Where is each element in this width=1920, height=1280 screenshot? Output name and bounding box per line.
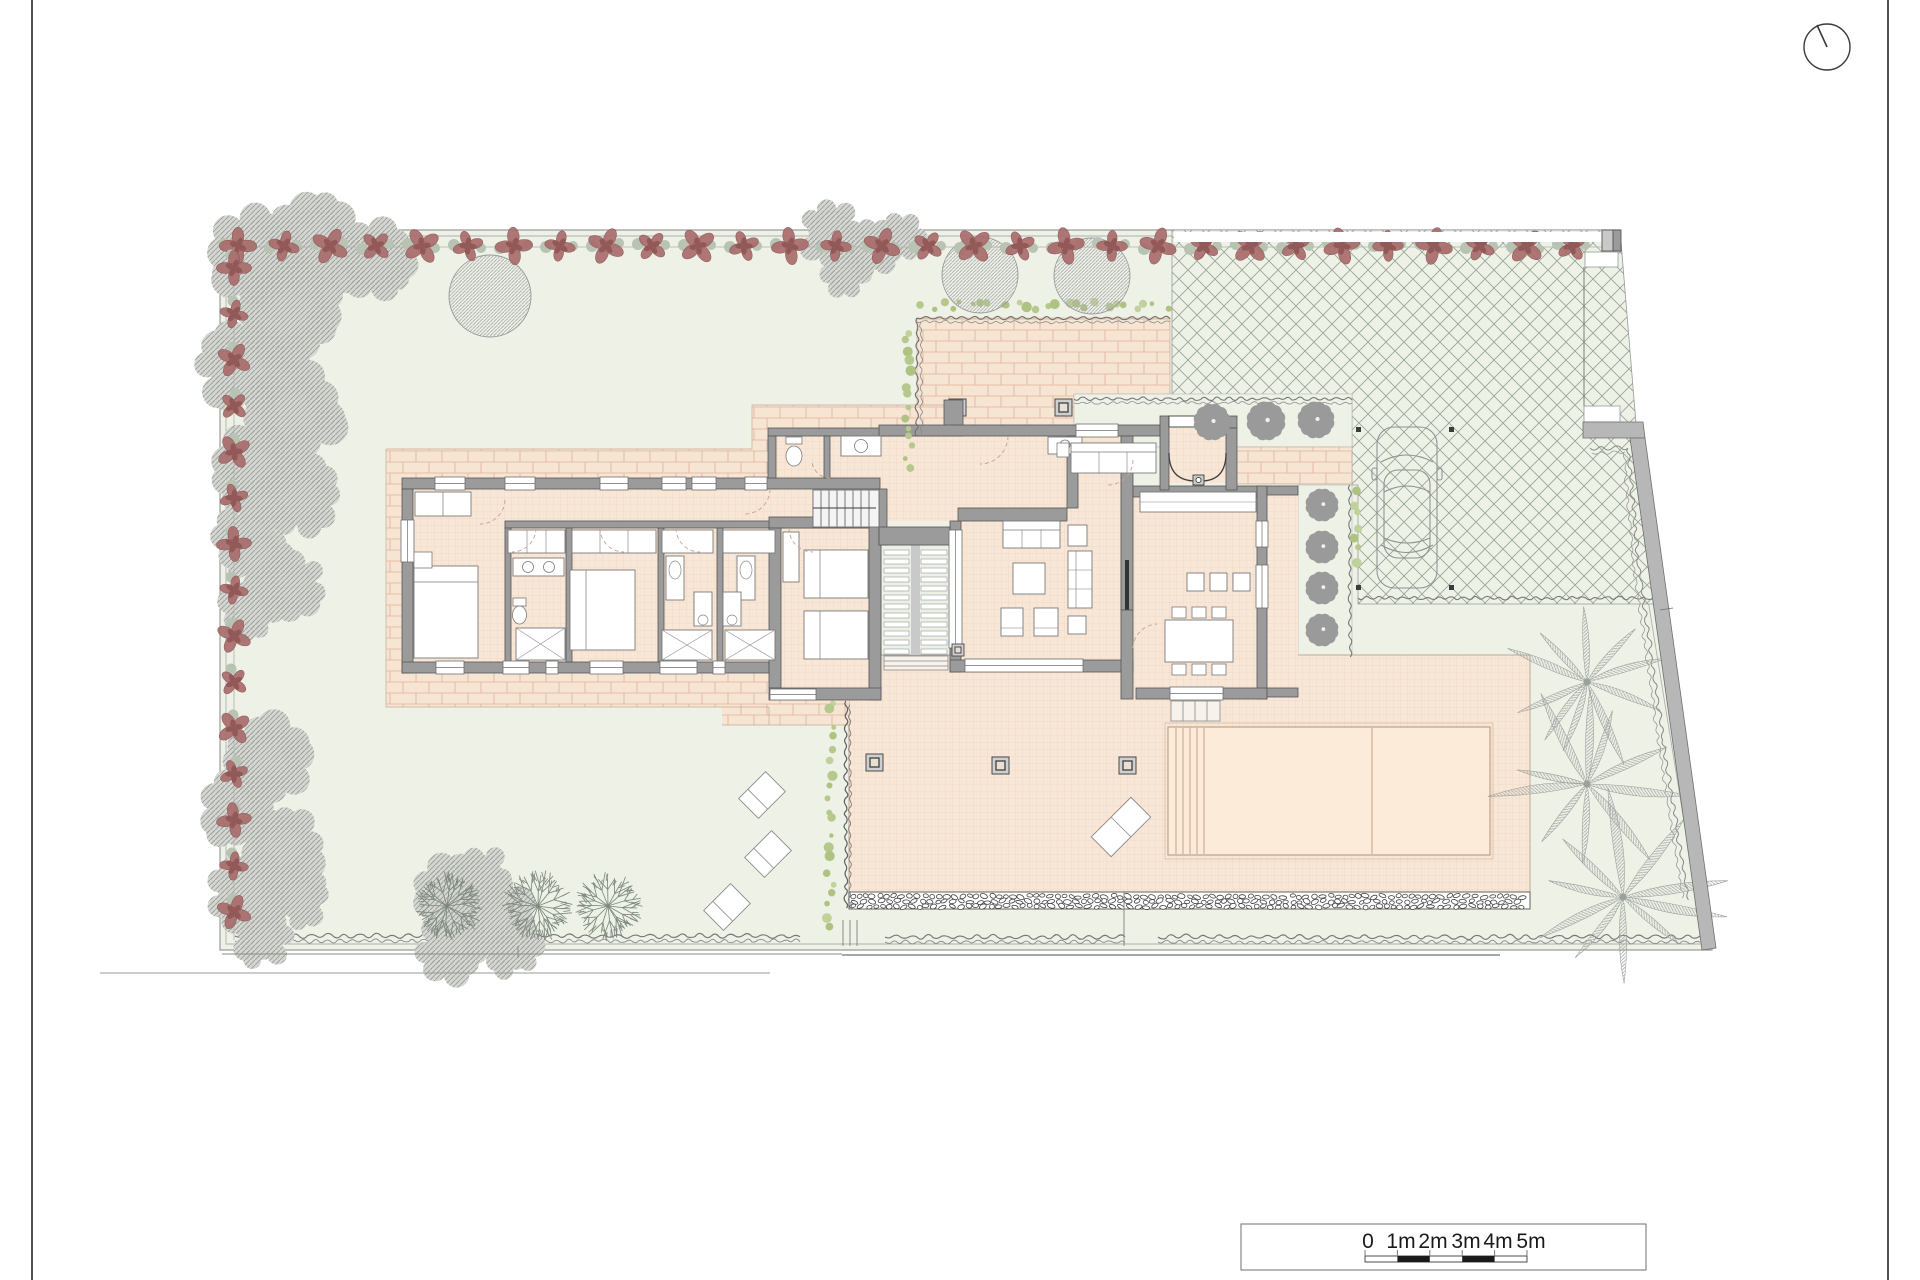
svg-text:3m: 3m (1451, 1230, 1480, 1253)
svg-text:4m: 4m (1483, 1230, 1512, 1253)
svg-text:0: 0 (1362, 1230, 1374, 1253)
svg-text:1m: 1m (1386, 1230, 1415, 1253)
svg-text:5m: 5m (1516, 1230, 1545, 1253)
svg-text:2m: 2m (1418, 1230, 1447, 1253)
